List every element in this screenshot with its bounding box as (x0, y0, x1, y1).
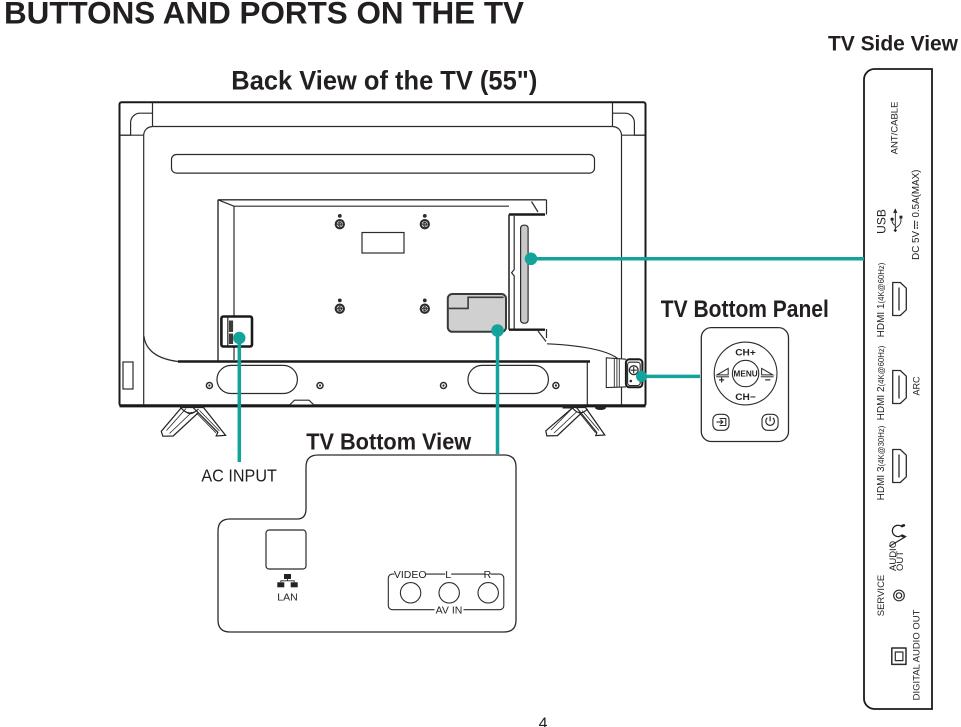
svg-text:BUTTONS AND PORTS ON THE TV: BUTTONS AND PORTS ON THE TV (4, 0, 524, 31)
svg-text:ANT/CABLE: ANT/CABLE (890, 102, 901, 155)
svg-text:ARC: ARC (911, 376, 921, 396)
svg-text:AC INPUT: AC INPUT (201, 466, 277, 486)
svg-text:VIDEO: VIDEO (394, 569, 427, 581)
svg-text:SERVICE: SERVICE (876, 575, 887, 617)
svg-text:CH−: CH− (735, 392, 756, 403)
svg-text:HDMI 3(4K@30Hz): HDMI 3(4K@30Hz) (876, 425, 887, 500)
svg-text:TV Bottom View: TV Bottom View (306, 429, 472, 455)
svg-text:R: R (484, 569, 492, 581)
svg-text:OUT: OUT (895, 551, 906, 571)
svg-text:DC 5V: DC 5V (911, 231, 922, 260)
svg-text:CH+: CH+ (735, 348, 756, 359)
svg-text:TV Bottom Panel: TV Bottom Panel (661, 296, 829, 323)
svg-text:LAN: LAN (277, 592, 297, 604)
svg-text:0.5A(MAX): 0.5A(MAX) (911, 170, 922, 218)
svg-text:HDMI 1(4K@60Hz): HDMI 1(4K@60Hz) (876, 262, 887, 337)
svg-text:HDMI 2(4K@60Hz): HDMI 2(4K@60Hz) (876, 345, 887, 420)
svg-text:DIGITAL AUDIO OUT: DIGITAL AUDIO OUT (912, 609, 923, 700)
svg-text:MENU: MENU (734, 370, 758, 379)
svg-text:USB: USB (875, 209, 889, 234)
svg-text:Back View of the TV (55"): Back View of the TV (55") (231, 66, 537, 96)
svg-text:TV Side View: TV Side View (828, 33, 959, 56)
svg-text:L: L (445, 569, 451, 581)
svg-text:4: 4 (539, 716, 548, 727)
svg-text:AV IN: AV IN (436, 605, 463, 617)
